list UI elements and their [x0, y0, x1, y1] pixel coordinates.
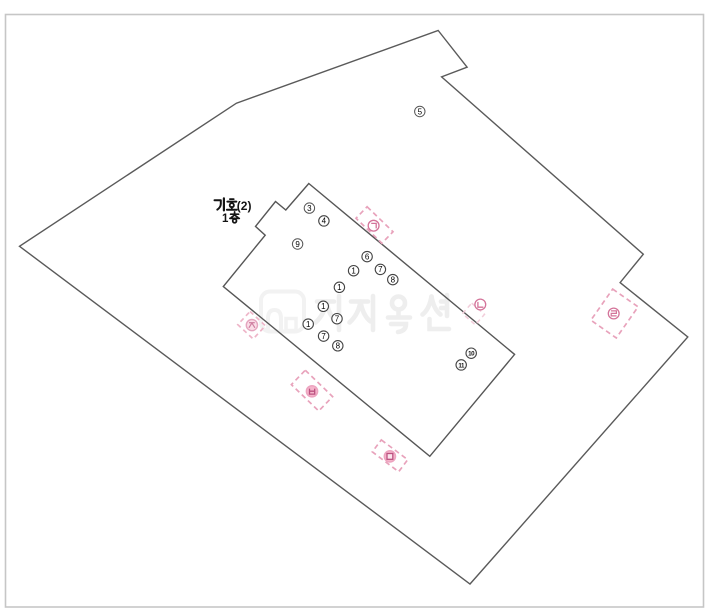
svg-text:1: 1	[337, 283, 342, 292]
svg-text:3: 3	[307, 204, 312, 213]
svg-text:10: 10	[468, 351, 475, 358]
svg-text:9: 9	[295, 240, 300, 249]
svg-text:1: 1	[351, 267, 356, 276]
svg-text:4: 4	[322, 217, 327, 226]
svg-text:1: 1	[222, 213, 229, 225]
svg-text:8: 8	[336, 342, 341, 351]
svg-text:11: 11	[458, 362, 465, 369]
svg-text:1: 1	[306, 320, 311, 329]
svg-text:7: 7	[321, 332, 326, 341]
svg-text:7: 7	[335, 315, 340, 324]
svg-text:6: 6	[365, 252, 370, 261]
svg-text:5: 5	[418, 107, 423, 116]
svg-text:7: 7	[378, 265, 383, 274]
svg-text:8: 8	[391, 275, 396, 284]
svg-text:(2): (2)	[237, 199, 252, 213]
svg-text:1: 1	[321, 302, 326, 311]
